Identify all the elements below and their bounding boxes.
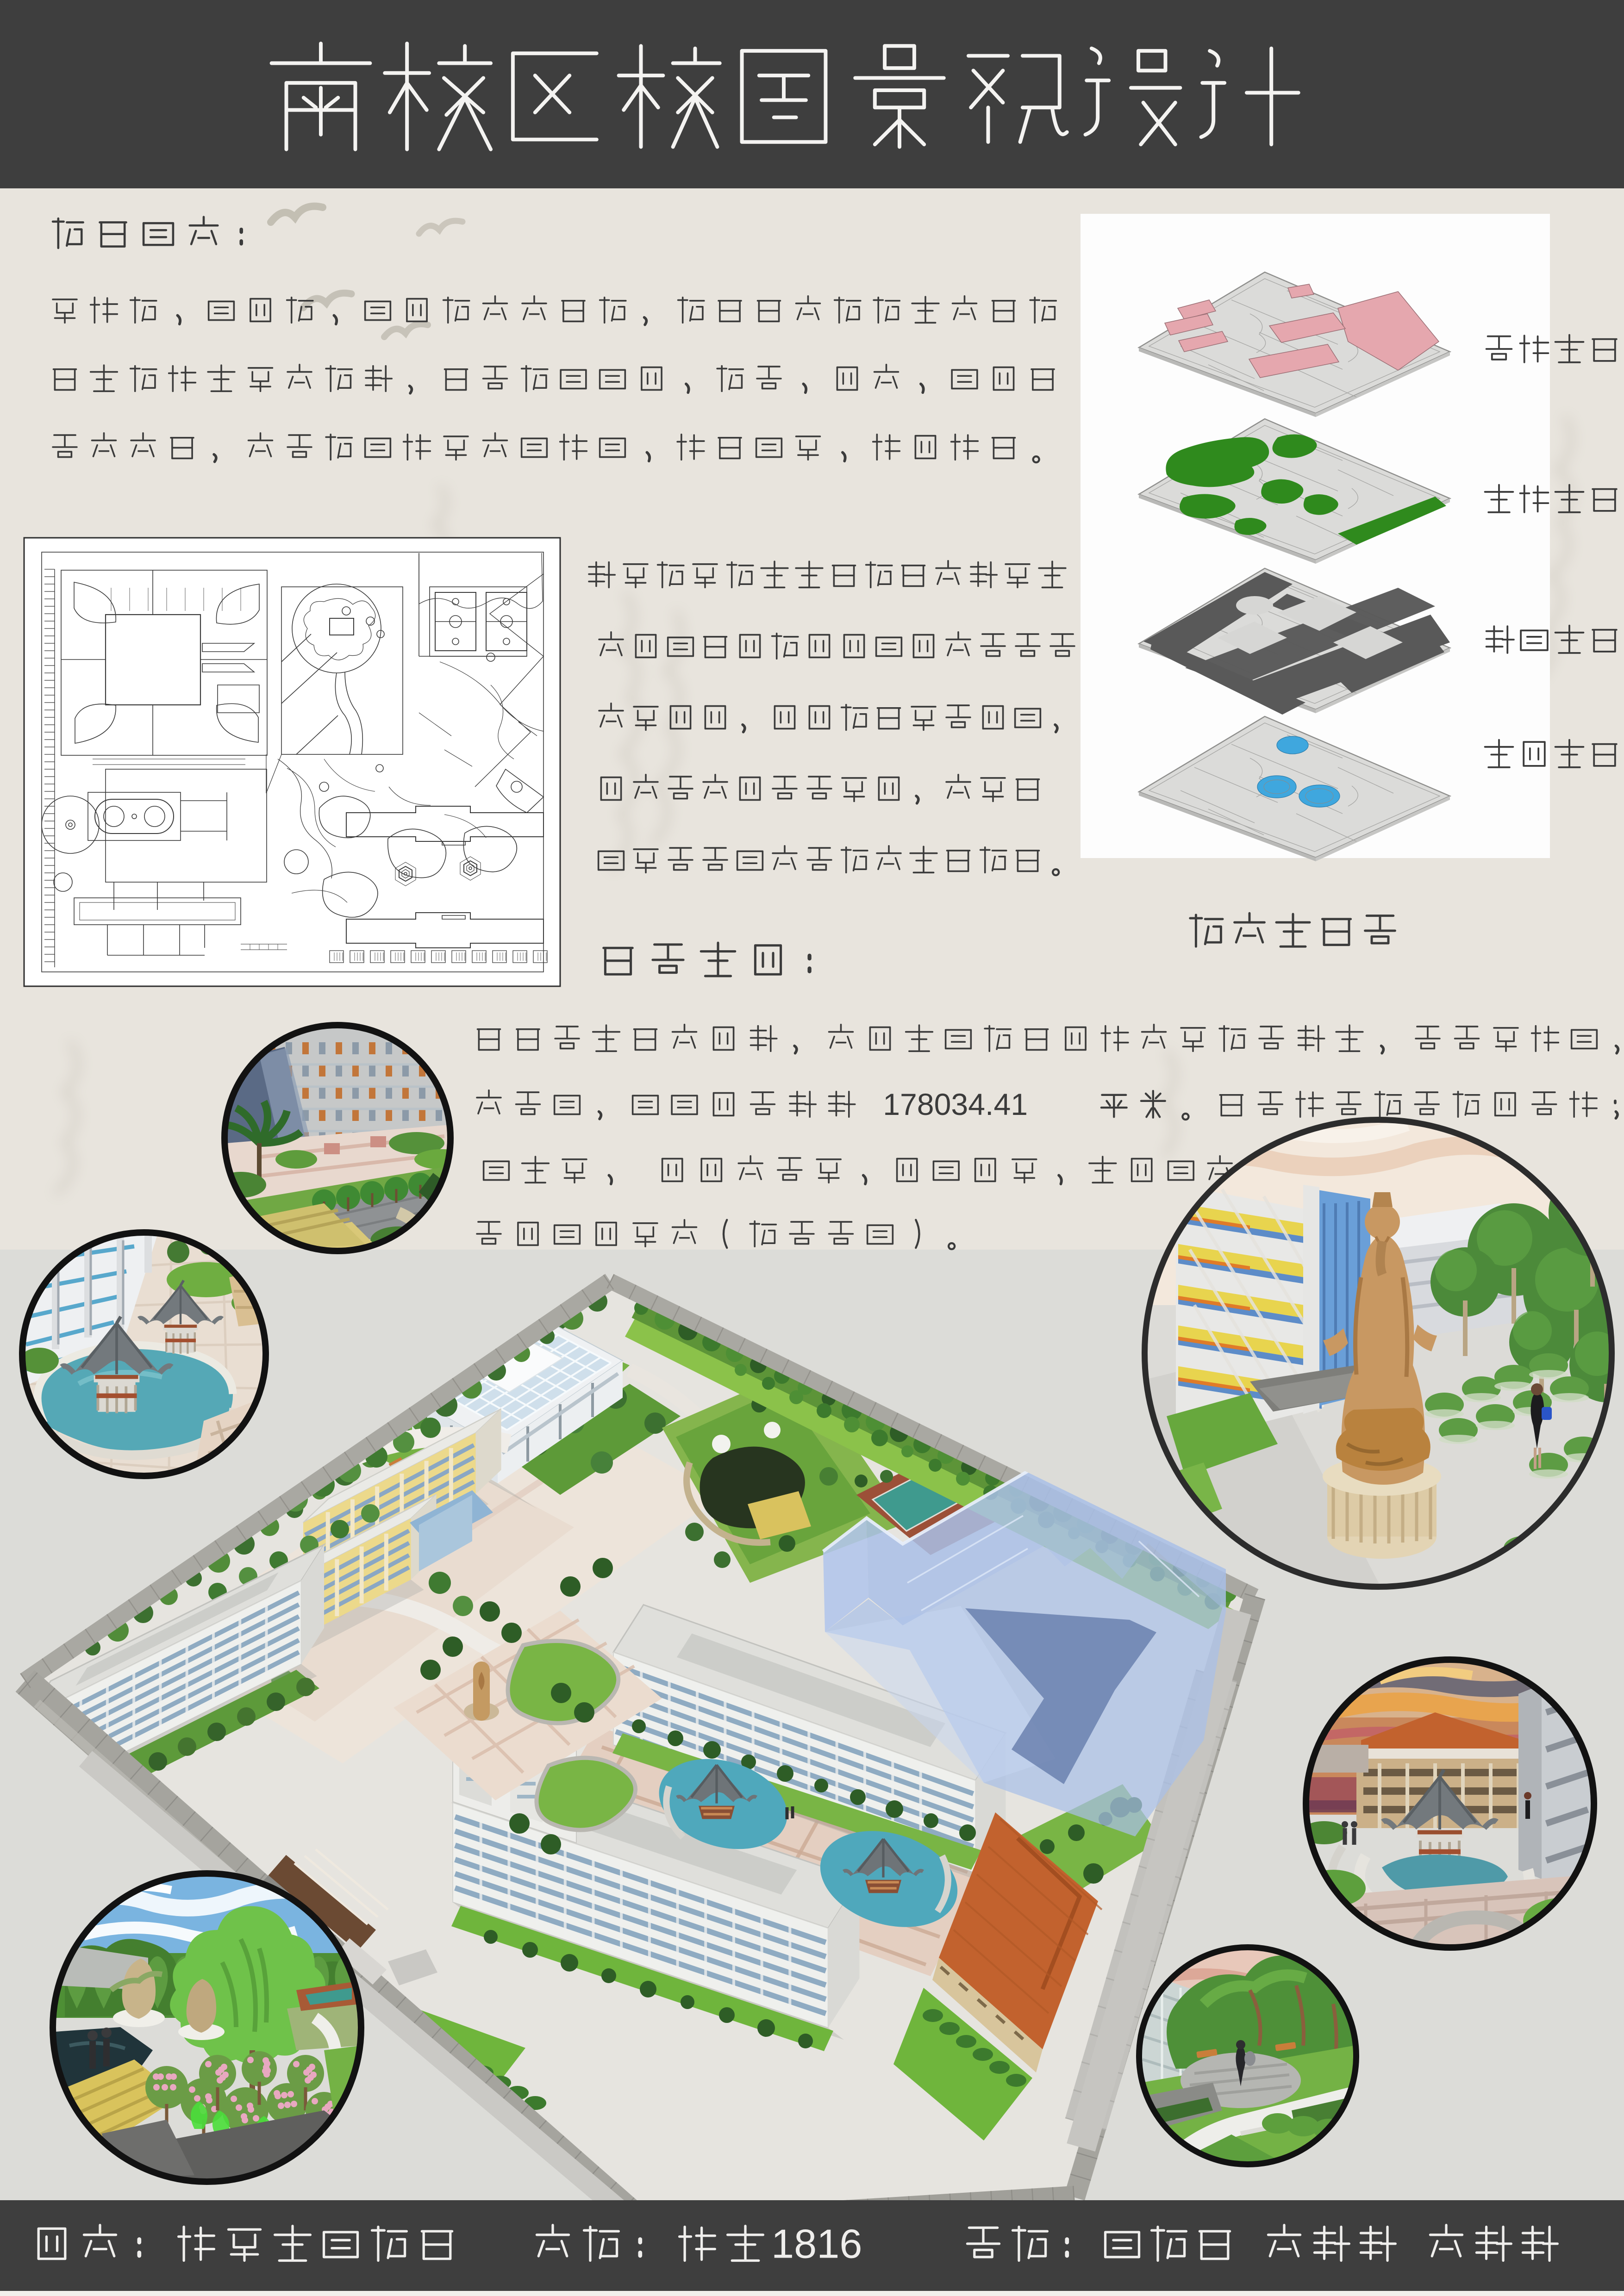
svg-text:178034.41: 178034.41 <box>883 1088 1028 1122</box>
svg-text:1816: 1816 <box>771 2221 862 2267</box>
